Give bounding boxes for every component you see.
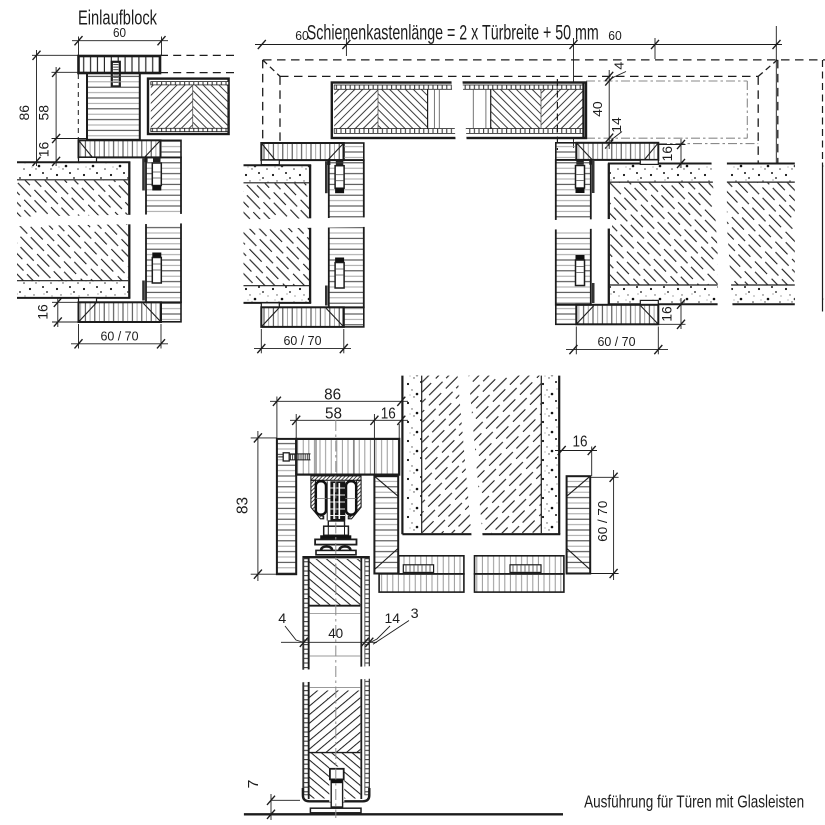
svg-text:60: 60 [113, 25, 126, 40]
svg-text:3: 3 [411, 606, 419, 621]
svg-text:Schienenkastenlänge = 2 x Türb: Schienenkastenlänge = 2 x Türbreite + 50… [307, 21, 599, 44]
svg-text:60 / 70: 60 / 70 [101, 328, 139, 343]
svg-text:58: 58 [325, 406, 342, 423]
svg-text:58: 58 [37, 105, 52, 121]
svg-text:40: 40 [590, 101, 605, 117]
svg-text:86: 86 [17, 105, 32, 121]
svg-text:60 / 70: 60 / 70 [284, 333, 322, 348]
svg-text:16: 16 [37, 142, 52, 158]
svg-text:60 / 70: 60 / 70 [598, 334, 636, 349]
svg-text:60 / 70: 60 / 70 [595, 501, 610, 542]
svg-text:16: 16 [660, 146, 675, 162]
svg-text:7: 7 [246, 780, 262, 789]
svg-text:14: 14 [385, 611, 401, 626]
svg-text:4: 4 [612, 62, 627, 70]
svg-text:86: 86 [324, 386, 341, 403]
svg-text:4: 4 [278, 611, 286, 626]
svg-text:60: 60 [608, 28, 622, 43]
svg-text:14: 14 [609, 117, 624, 133]
svg-text:Ausführung für Türen mit Glasl: Ausführung für Türen mit Glasleisten [584, 791, 804, 811]
svg-text:16: 16 [573, 434, 588, 451]
svg-text:83: 83 [235, 497, 252, 514]
svg-text:16: 16 [381, 406, 396, 423]
svg-text:16: 16 [36, 304, 51, 320]
svg-text:60: 60 [295, 28, 309, 43]
svg-text:16: 16 [660, 306, 675, 322]
